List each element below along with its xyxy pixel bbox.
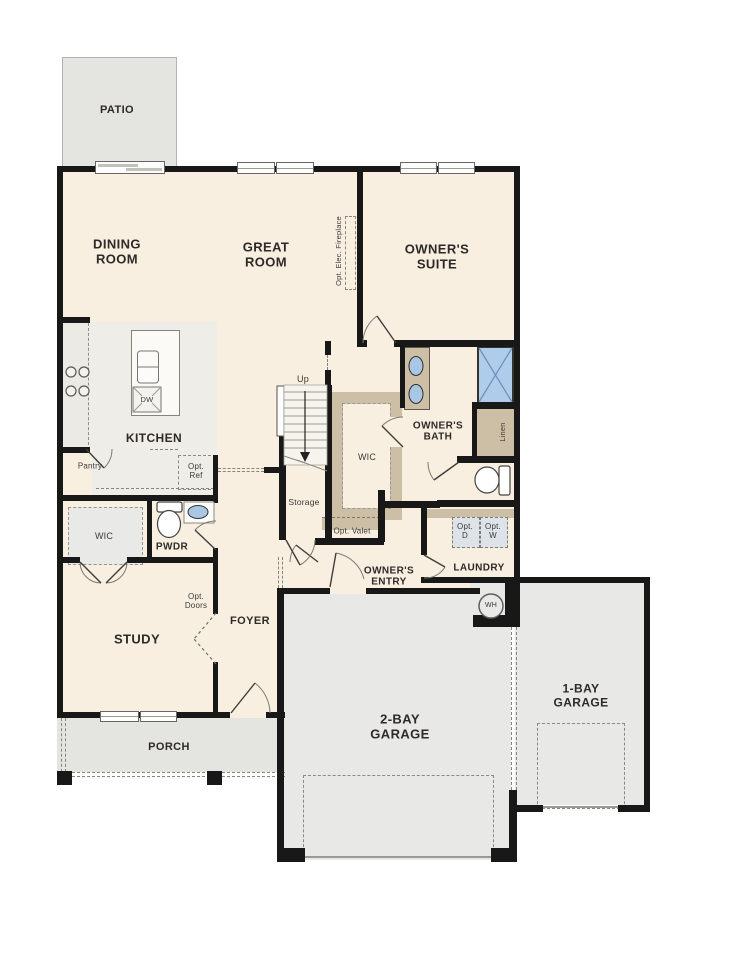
garage-shared-dash-1 [511,627,512,790]
wall-vanity [400,347,405,408]
wall-foyer-south-a [218,712,230,718]
kitchen-soffit-dash [96,488,214,489]
wic-study-label: WIC [95,531,113,541]
wall-kitchen-south [57,495,218,501]
great-room-window-1 [237,162,275,174]
wall-laundry-north [437,500,520,507]
wall-foyer-south-b [266,712,285,718]
wall-below-shower [472,402,520,409]
foyer-label: FOYER [230,615,270,627]
foyer-entry-dash-1 [278,557,279,588]
wic-opening-dash [327,355,328,370]
kitchen-label: KITCHEN [126,432,182,446]
wall-pantry-stub [57,447,90,453]
foyer-entry-dash-2 [282,557,283,588]
study-foyer-area [57,560,285,718]
kitchen-island [131,330,180,416]
wall-study-north-a [57,557,80,563]
study-window-2 [140,711,177,722]
wall-garage-shared-s [509,790,517,862]
study-window-1 [100,711,139,722]
linen-label: Linen [499,422,507,441]
great-room-window-2 [276,162,314,174]
laundry-label: LAUNDRY [453,562,504,573]
kitchen-cabinet-dash [150,449,178,450]
opt-washer-label: Opt.W [485,522,501,540]
wall-below-linen [457,456,520,463]
wall-storage-south-stub [315,538,327,545]
wall-great-suite [357,166,363,341]
owners-bath-label: OWNER'SBATH [413,421,463,444]
wall-storage-west [279,436,286,540]
cased-opening-dash-2 [218,471,264,472]
pantry-label: Pantry [78,461,102,470]
wall-kitchen-stub-n [57,317,90,323]
porch-side-dash-2 [65,718,66,772]
wall-2bay-south-l [277,848,305,862]
suite-window-2 [438,162,475,174]
wall-stair-stub-a [325,341,331,355]
wall-1bay-south-r [618,805,650,812]
porch-edge-dash-2 [57,776,285,777]
porch-post-left [57,771,72,785]
porch-edge-dash-1 [57,772,285,773]
dining-room-label: DININGROOM [93,237,141,266]
garage-shared-dash-2 [516,627,517,790]
1bay-garage-door-line [543,806,618,808]
2bay-garage-door-outline [303,775,494,857]
owners-entry-label: OWNER'SENTRY [364,566,414,589]
study-label: STUDY [114,633,160,648]
porch-post-right [207,771,222,785]
wall-hall-east-a [213,455,218,503]
wall-2bay-north-a [277,588,330,594]
wic-door-gap [390,417,404,447]
wall-hall-stub [264,467,280,473]
patio-label: PATIO [100,104,134,116]
wall-1bay-east [644,577,650,812]
porch-label: PORCH [148,741,190,753]
wall-suite-south-b [394,340,520,347]
wall-2bay-north-b [366,588,480,594]
great-room-label: GREATROOM [243,240,290,269]
opt-dryer-label: Opt.D [457,522,473,540]
opt-doors-label: Opt.Doors [185,592,207,610]
opt-fireplace-label: Opt. Elec. Fireplace [335,216,343,286]
two-bay-garage-label: 2-BAYGARAGE [370,712,429,741]
dishwasher-label: DW [141,396,154,404]
2bay-garage-door-line [305,856,491,858]
vanity-counter [404,347,430,410]
linen-closet [477,408,514,457]
wall-hall-east-b [213,548,218,614]
shower [477,346,514,404]
kitchen-counter-left [61,323,89,445]
opt-fireplace-outline [345,216,356,290]
wic-main-label: WIC [358,452,376,462]
storage-label: Storage [288,498,319,508]
wall-pwdr-west [147,501,152,558]
wall-bath-south [378,501,440,508]
wall-linen-west [472,409,477,458]
opt-ref-label: Opt.Ref [188,462,204,480]
porch-side-dash-1 [61,718,62,772]
owners-suite-label: OWNER'SSUITE [405,242,469,271]
up-label: Up [297,374,309,384]
wall-laundry-west-a [421,507,427,555]
wall-wic-west [325,385,332,540]
wall-1bay-south-l [513,805,543,812]
suite-window-1 [400,162,437,174]
wall-laundry-south [421,577,650,583]
1bay-garage-door-outline [537,723,625,809]
wall-study-north-b [127,557,218,563]
pwdr-label: PWDR [156,541,188,552]
wall-west [57,166,63,718]
wall-2bay-west [277,588,284,862]
floor-plan: PATIO DININGROOM GREATROOM OWNER'SSUITE … [0,0,742,958]
wall-valet-south [327,538,384,545]
cased-opening-dash-1 [218,468,264,469]
wall-suite-south-a [357,340,367,347]
one-bay-garage-label: 1-BAYGARAGE [553,682,608,709]
wall-bath-hall [378,490,385,542]
wall-east [514,166,520,583]
wh-label: WH [485,602,497,610]
opt-valet-label: Opt. Valet [334,526,371,535]
patio-slider [95,161,165,174]
wall-hall-east-c [213,662,218,714]
wall-wh-east [505,583,520,627]
